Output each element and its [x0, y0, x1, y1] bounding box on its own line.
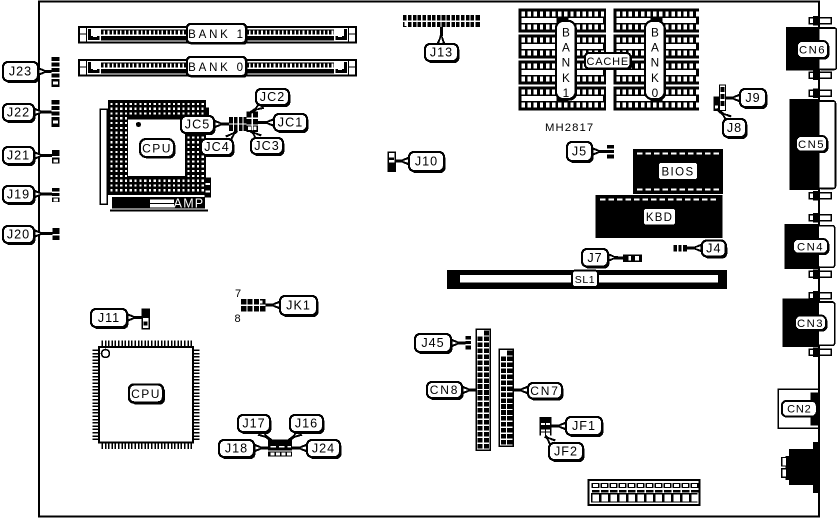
svg-text:AMP: AMP	[174, 196, 205, 210]
svg-text:CN6: CN6	[799, 45, 826, 57]
svg-text:N: N	[562, 56, 571, 70]
svg-text:JC4: JC4	[204, 140, 229, 154]
svg-text:BIOS: BIOS	[661, 166, 694, 178]
svg-text:CPU: CPU	[131, 387, 161, 401]
svg-text:J20: J20	[7, 228, 30, 242]
svg-text:J5: J5	[572, 145, 587, 159]
svg-text:7: 7	[235, 288, 241, 300]
svg-text:J22: J22	[7, 106, 30, 120]
svg-text:CPU: CPU	[142, 141, 172, 155]
svg-text:J19: J19	[7, 188, 30, 202]
svg-text:CN8: CN8	[430, 383, 459, 397]
svg-text:1: 1	[563, 86, 570, 100]
svg-text:0: 0	[652, 86, 659, 100]
svg-text:JC1: JC1	[278, 116, 303, 130]
svg-text:N: N	[651, 56, 660, 70]
svg-text:J13: J13	[430, 46, 453, 60]
svg-text:B: B	[562, 25, 570, 39]
svg-text:SL1: SL1	[575, 274, 595, 286]
svg-text:J18: J18	[225, 442, 248, 456]
svg-text:CACHE: CACHE	[587, 56, 630, 68]
svg-text:J11: J11	[98, 311, 120, 325]
svg-text:JC2: JC2	[260, 90, 285, 104]
svg-text:J45: J45	[421, 336, 444, 350]
svg-text:J7: J7	[587, 251, 602, 265]
svg-text:JF1: JF1	[572, 419, 596, 433]
svg-text:JK1: JK1	[286, 299, 311, 313]
svg-text:CN2: CN2	[787, 404, 811, 416]
svg-text:J8: J8	[727, 121, 742, 135]
svg-text:B: B	[651, 25, 659, 39]
svg-text:BANK 0: BANK 0	[188, 62, 246, 74]
svg-text:J23: J23	[9, 65, 32, 79]
svg-text:J21: J21	[7, 149, 30, 163]
svg-text:K: K	[562, 71, 570, 85]
svg-text:J10: J10	[415, 155, 438, 169]
svg-text:JC3: JC3	[254, 139, 279, 153]
svg-text:MH2817: MH2817	[545, 122, 594, 134]
svg-text:KBD: KBD	[646, 212, 673, 224]
svg-text:A: A	[651, 41, 659, 55]
svg-text:K: K	[651, 71, 659, 85]
svg-text:A: A	[562, 41, 570, 55]
svg-text:CN5: CN5	[798, 139, 825, 151]
svg-text:CN3: CN3	[797, 318, 824, 330]
svg-text:JC5: JC5	[185, 118, 210, 132]
svg-text:J16: J16	[295, 417, 318, 431]
svg-text:J17: J17	[242, 417, 265, 431]
svg-text:8: 8	[234, 313, 240, 325]
svg-text:CN7: CN7	[530, 384, 559, 398]
svg-text:J24: J24	[312, 442, 335, 456]
svg-text:BANK 1: BANK 1	[188, 29, 246, 41]
svg-text:J4: J4	[706, 242, 721, 256]
svg-text:JF2: JF2	[554, 445, 578, 459]
svg-text:J9: J9	[745, 91, 760, 105]
svg-text:CN4: CN4	[797, 241, 824, 253]
